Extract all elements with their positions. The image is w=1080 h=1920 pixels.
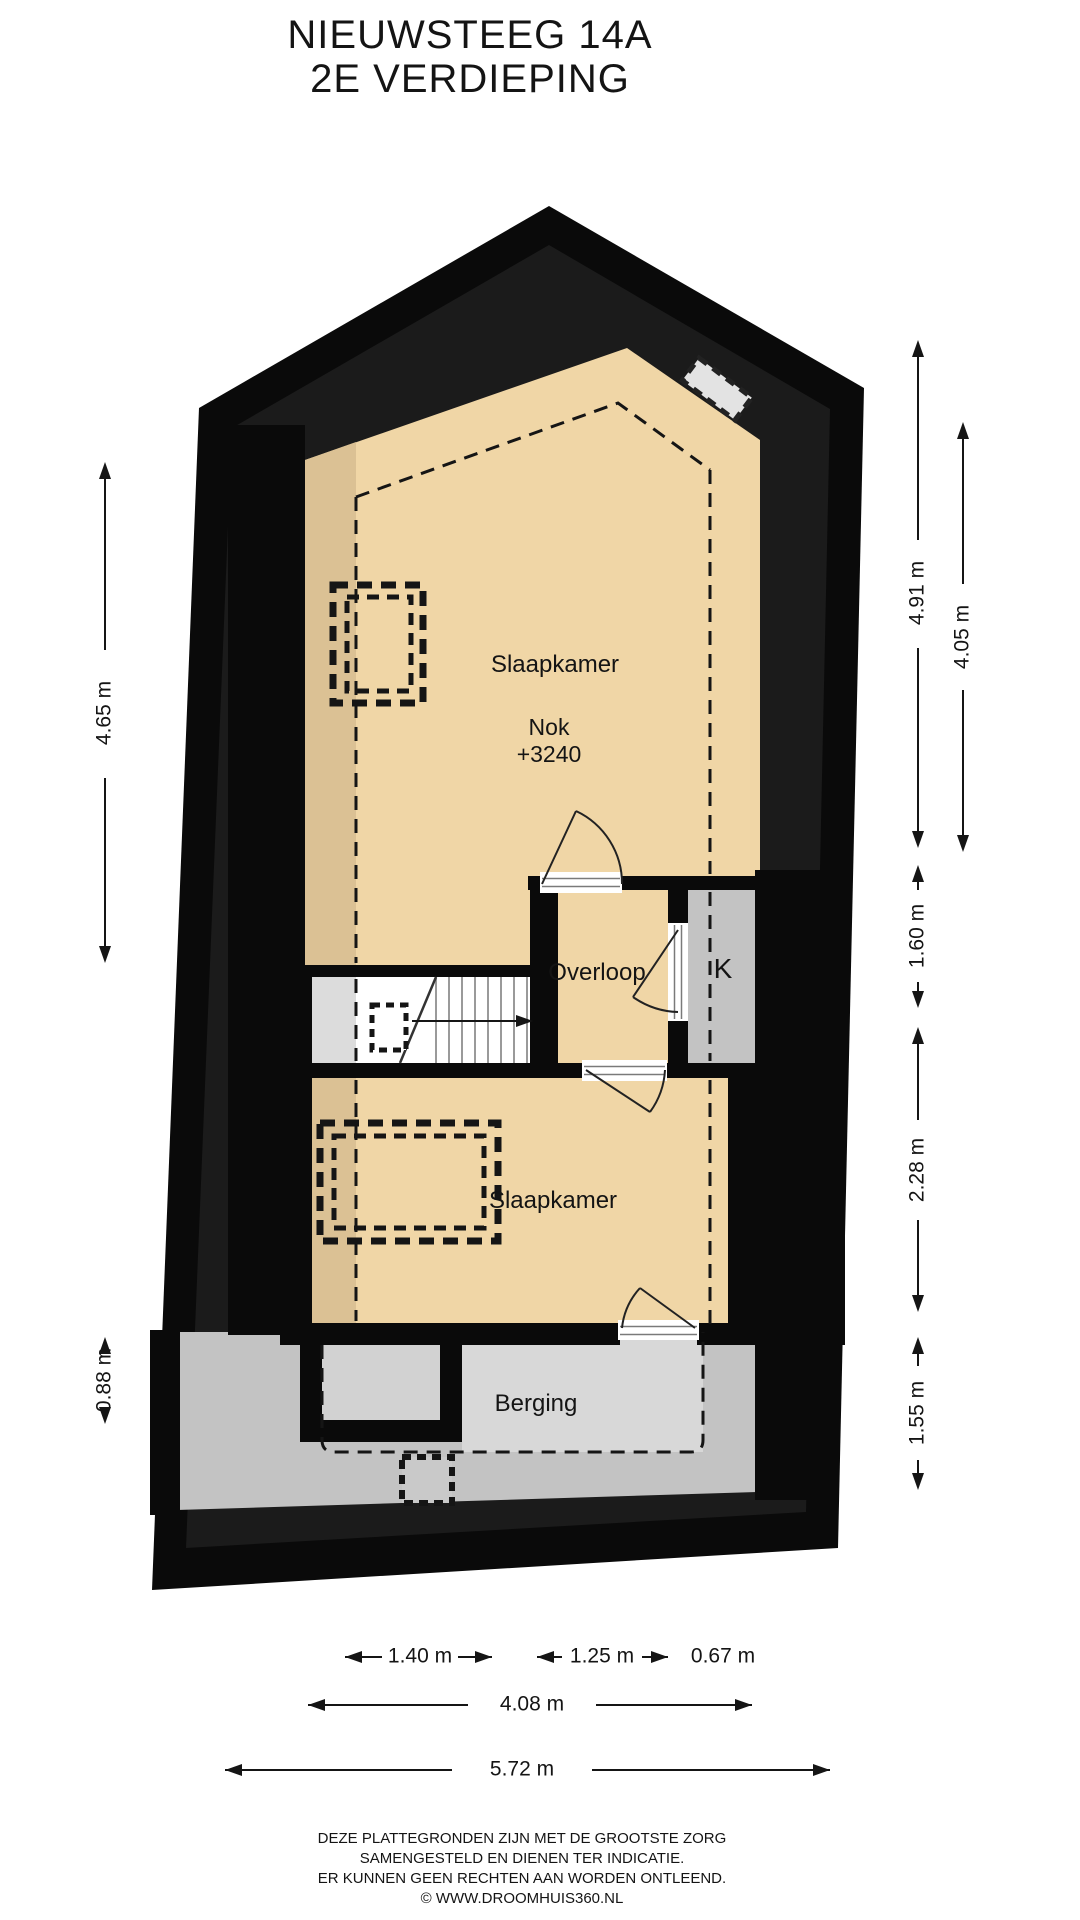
wall-closet-stub-top: [668, 890, 688, 925]
footer-line4: © WWW.DROOMHUIS360.NL: [421, 1890, 624, 1907]
wall-mid-left: [280, 1063, 582, 1078]
arrow-down-icon: [99, 946, 111, 963]
arrow-up-icon: [912, 1027, 924, 1044]
footer-disclaimer: DEZE PLATTEGRONDEN ZIJN MET DE GROOTSTE …: [318, 1830, 727, 1907]
arrow-right-icon: [651, 1651, 668, 1663]
floorplan-canvas: NIEUWSTEEG 14A 2E VERDIEPING: [0, 0, 1080, 1920]
door-frame-landing-bottom: [582, 1060, 667, 1081]
dim-bottom-inner-label: 4.08 m: [500, 1693, 564, 1716]
wall-left-upper: [228, 425, 305, 970]
wall-closet-right: [755, 870, 845, 1078]
wall-stairhead-bottom: [300, 1420, 462, 1442]
dim-right-4-label: 2.28 m: [906, 1138, 929, 1202]
wall-storage-right: [755, 1332, 835, 1500]
arrow-right-icon: [475, 1651, 492, 1663]
dim-left-upper-label: 4.65 m: [93, 681, 116, 745]
arrow-up-icon: [912, 1337, 924, 1354]
dimensions-bottom: 1.40 m 1.25 m 0.67 m 4.08 m 5.72 m: [225, 1645, 830, 1781]
arrow-down-icon: [912, 831, 924, 848]
dimensions-right: 4.91 m 4.05 m 1.60 m 2.28 m 1.55 m: [906, 340, 974, 1490]
arrow-left-icon: [308, 1699, 325, 1711]
floorplan-page: NIEUWSTEEG 14A 2E VERDIEPING: [0, 0, 1080, 1920]
arrow-down-icon: [957, 835, 969, 852]
door-frame-closet: [668, 923, 688, 1021]
wall-storage-left: [150, 1330, 180, 1515]
wall-landing-top-right: [622, 876, 760, 890]
label-ridge: Nok: [529, 714, 570, 740]
arrow-up-icon: [99, 462, 111, 479]
label-closet: K: [714, 953, 733, 984]
dimensions-left: 4.65 m 0.88 m: [93, 462, 116, 1424]
footer-line1: DEZE PLATTEGRONDEN ZIJN MET DE GROOTSTE …: [318, 1830, 727, 1847]
arrow-left-icon: [537, 1651, 554, 1663]
dim-bottom-a-label: 1.40 m: [388, 1645, 452, 1668]
wall-bedroom-right: [728, 1078, 845, 1345]
dim-right-3-label: 1.60 m: [906, 904, 929, 968]
storage-stairhead-inner: [322, 1345, 440, 1420]
label-ridge-height: +3240: [517, 741, 582, 767]
arrow-right-icon: [813, 1764, 830, 1776]
dim-right-1-label: 4.91 m: [906, 561, 929, 625]
arrow-up-icon: [912, 340, 924, 357]
arrow-down-icon: [912, 991, 924, 1008]
label-landing: Overloop: [548, 959, 645, 986]
dim-bottom-b-label: 1.25 m: [570, 1645, 634, 1668]
dim-left-lower-label: 0.88 m: [93, 1348, 116, 1412]
stair-hatch-opening-icon: [372, 1005, 406, 1050]
door-frame-landing-top: [540, 872, 622, 893]
arrow-right-icon: [735, 1699, 752, 1711]
label-bedroom-top: Slaapkamer: [491, 651, 619, 678]
arrow-down-icon: [912, 1295, 924, 1312]
arrow-left-icon: [345, 1651, 362, 1663]
dim-right-2-label: 4.05 m: [951, 605, 974, 669]
arrow-up-icon: [957, 422, 969, 439]
page-title-line2: 2E VERDIEPING: [310, 57, 630, 101]
stairwell-side-strip: [312, 977, 356, 1063]
page-title-line1: NIEUWSTEEG 14A: [287, 13, 652, 57]
label-bedroom-bottom: Slaapkamer: [489, 1187, 617, 1214]
wall-mid-right: [667, 1063, 760, 1078]
wall-left-lower: [228, 965, 312, 1335]
label-storage: Berging: [495, 1390, 578, 1417]
dim-bottom-outer-label: 5.72 m: [490, 1758, 554, 1781]
footer-line2: SAMENGESTELD EN DIENEN TER INDICATIE.: [360, 1850, 685, 1867]
dim-right-5-label: 1.55 m: [906, 1381, 929, 1445]
wall-bottom-left: [280, 1323, 620, 1345]
arrow-down-icon: [912, 1473, 924, 1490]
footer-line3: ER KUNNEN GEEN RECHTEN AAN WORDEN ONTLEE…: [318, 1870, 726, 1887]
chimney-icon: [402, 1457, 452, 1503]
arrow-left-icon: [225, 1764, 242, 1776]
wall-stair-top: [280, 965, 540, 977]
arrow-up-icon: [912, 865, 924, 882]
dim-bottom-c-label: 0.67 m: [691, 1645, 755, 1668]
